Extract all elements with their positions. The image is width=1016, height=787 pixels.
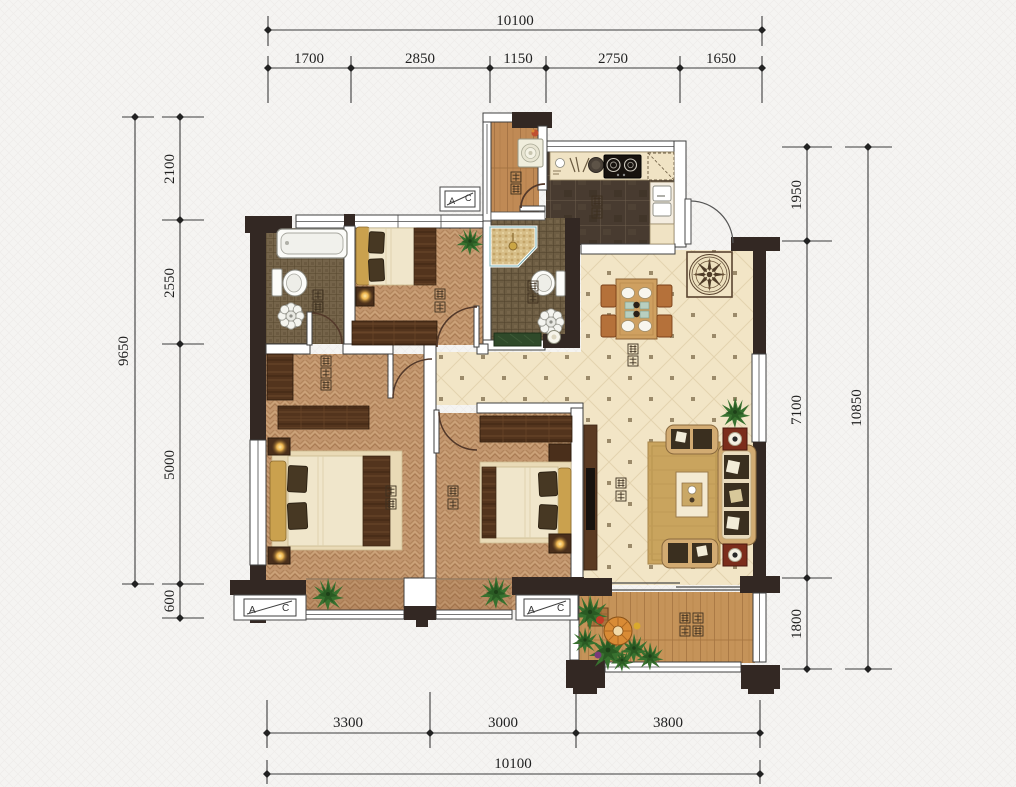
svg-text:2550: 2550	[162, 268, 178, 298]
svg-text:A: A	[528, 605, 535, 616]
svg-text:1950: 1950	[789, 180, 805, 210]
svg-text:5000: 5000	[162, 450, 178, 480]
svg-text:C: C	[282, 603, 289, 614]
svg-text:1700: 1700	[294, 51, 324, 67]
svg-text:9650: 9650	[116, 336, 132, 366]
svg-text:1150: 1150	[503, 51, 532, 67]
svg-text:1800: 1800	[789, 609, 805, 639]
svg-text:1650: 1650	[706, 51, 736, 67]
svg-text:3300: 3300	[333, 715, 363, 731]
svg-text:10850: 10850	[849, 389, 865, 427]
svg-text:2750: 2750	[598, 51, 628, 67]
svg-text:7100: 7100	[789, 395, 805, 425]
svg-text:C: C	[557, 603, 564, 614]
svg-text:600: 600	[162, 590, 178, 613]
svg-text:A: A	[449, 196, 455, 206]
svg-text:10100: 10100	[494, 756, 532, 772]
svg-text:3000: 3000	[488, 715, 518, 731]
svg-text:10100: 10100	[496, 13, 534, 29]
svg-text:2100: 2100	[162, 154, 178, 184]
svg-text:A: A	[249, 605, 256, 616]
svg-text:3800: 3800	[653, 715, 683, 731]
svg-text:C: C	[465, 193, 472, 203]
svg-text:2850: 2850	[405, 51, 435, 67]
